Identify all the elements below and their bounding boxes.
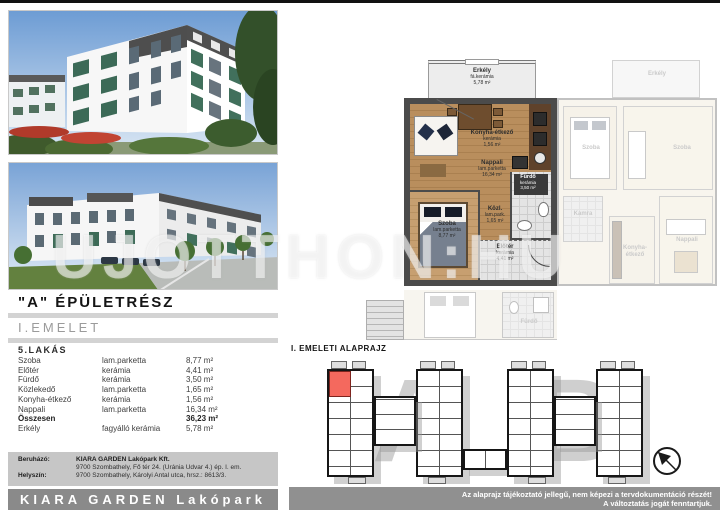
row-room: Erkély <box>18 424 102 434</box>
developer-name: KIARA GARDEN Lakópark Kft. <box>76 456 170 463</box>
room-name: Szoba <box>572 145 610 152</box>
building-section-title: "A" ÉPÜLETRÉSZ <box>18 294 174 311</box>
neighbor-room-kamra: Kamra <box>563 196 603 242</box>
row-material: fagyálló kerámia <box>102 424 186 434</box>
kitchen-counter <box>529 104 551 170</box>
unit-table-title: 5.LAKÁS <box>18 345 67 355</box>
neighbor-apartment-below: Fürdő <box>404 290 557 340</box>
row-material: lam.parketta <box>102 405 186 415</box>
total-area: 36,23 m² <box>186 414 246 424</box>
neighbor-apartment-right: Szoba Szoba Kamra Konyha-étkező Nappali <box>557 98 717 286</box>
table-row: Nappali lam.parketta 16,34 m² <box>18 405 258 415</box>
building-render-1 <box>8 10 278 155</box>
overview-title: I. EMELETI ALAPRAJZ <box>291 344 386 353</box>
label-neighbor-szoba-2: Szoba <box>660 145 704 152</box>
row-area: 16,34 m² <box>186 405 246 415</box>
total-label: Összesen <box>18 414 102 424</box>
unit-table: Szoba lam.parketta 8,77 m² Előtér kerámi… <box>18 356 258 434</box>
overview-balcony-stub <box>608 477 626 484</box>
developer-address: 9700 Szombathely, Fő tér 24. (Uránia Udv… <box>76 464 241 471</box>
room-area: 1,56 m² <box>462 143 522 149</box>
sofa-pillow <box>418 124 435 141</box>
overview-wing-b-core <box>554 396 596 446</box>
kitchen-sink <box>534 152 546 164</box>
overview-balcony-stub <box>511 361 527 369</box>
row-area: 8,77 m² <box>186 356 246 366</box>
total-spacer <box>102 414 186 424</box>
brand-logo-bar: KIARA GARDEN Lakópark <box>8 489 278 510</box>
room-name: Nappali <box>664 237 710 244</box>
row-room: Szoba <box>18 356 102 366</box>
table-row: Előtér kerámia 4,41 m² <box>18 366 258 376</box>
neighbor-single-bed <box>628 131 646 179</box>
kitchen-appliance <box>533 132 547 146</box>
row-room: Előtér <box>18 366 102 376</box>
row-material: kerámia <box>102 366 186 376</box>
bed-pillow <box>424 207 441 217</box>
bed-pillow <box>445 207 462 217</box>
toilet <box>538 202 549 217</box>
table-row: Szoba lam.parketta 8,77 m² <box>18 356 258 366</box>
neighbor-room-szoba-1: Szoba <box>563 106 617 190</box>
sofa <box>414 116 458 156</box>
overview-balcony-stub <box>352 361 366 369</box>
entry-door-swing <box>528 245 550 267</box>
divider-rule-2 <box>8 338 278 343</box>
row-area: 5,78 m² <box>186 424 246 434</box>
brochure-page: { "header": { "building_section": "\"A\"… <box>0 0 720 510</box>
overview-balcony-stub <box>600 361 616 369</box>
row-room: Nappali <box>18 405 102 415</box>
row-area: 1,56 m² <box>186 395 246 405</box>
label-nappali: Nappali lam.parketta 16,34 m² <box>462 160 522 178</box>
label-neighbor-erkely: Erkély <box>637 71 677 78</box>
row-material: lam.parketta <box>102 385 186 395</box>
label-konyha: Konyha-étkező kerámia 1,56 m² <box>462 130 522 148</box>
building-render-2-image <box>9 163 278 290</box>
neighbor-room-konyha: Konyha-étkező <box>609 216 655 284</box>
label-neighbor-furdo: Fürdő <box>511 319 547 326</box>
developer-label: Beruházó: <box>18 456 50 463</box>
overview-wing-a-core <box>374 396 416 446</box>
overview-balcony-stub <box>420 361 436 369</box>
coffee-table <box>420 164 446 177</box>
row-area: 1,65 m² <box>186 385 246 395</box>
label-kozl: Közl. lam.park. 1,65 m² <box>478 206 512 224</box>
disclaimer-line-2: A változtatás jogát fenntartjuk. <box>297 499 712 508</box>
site-label: Helyszín: <box>18 472 47 479</box>
neighbor-bath-below: Fürdő <box>502 292 554 338</box>
overview-wing-a-right-slab <box>416 369 463 477</box>
room-name: Kamra <box>566 211 600 218</box>
neighbor-bed-pillow <box>430 296 446 306</box>
sofa-pillow <box>437 124 454 141</box>
room-name: Erkély <box>637 71 677 78</box>
kitchen-appliance <box>533 112 547 126</box>
neighbor-bed-pillow <box>592 121 606 130</box>
disclaimer-line-1: Az alaprajz tájékoztató jellegű, nem kép… <box>297 490 712 499</box>
overview-balcony-stub <box>428 477 446 484</box>
neighbor-toilet <box>509 301 519 314</box>
row-material: kerámia <box>102 375 186 385</box>
overview-balcony-stub <box>441 361 455 369</box>
neighbor-bed-below <box>424 292 476 338</box>
neighbor-shower <box>533 297 549 313</box>
row-area: 4,41 m² <box>186 366 246 376</box>
table-balcony-row: Erkély fagyálló kerámia 5,78 m² <box>18 424 258 434</box>
site-address: 9700 Szombathely, Károlyi Antal utca, hr… <box>76 472 226 479</box>
neighbor-room-nappali: Nappali <box>659 196 713 284</box>
compass-graphic <box>650 444 684 478</box>
table-row: Közlekedő lam.parketta 1,65 m² <box>18 385 258 395</box>
row-material: kerámia <box>102 395 186 405</box>
overview-balcony-stub <box>532 361 546 369</box>
overview-balcony-stub <box>621 361 635 369</box>
overview-highlighted-unit-5 <box>329 371 351 397</box>
label-neighbor-kamra: Kamra <box>566 211 600 218</box>
table-row: Konyha-étkező kerámia 1,56 m² <box>18 395 258 405</box>
row-area: 3,50 m² <box>186 375 246 385</box>
building-render-1-image <box>9 11 278 155</box>
room-area: 8,77 m² <box>420 234 474 240</box>
room-area: 1,65 m² <box>478 219 512 225</box>
room-area: 4,41 m² <box>482 257 528 263</box>
label-szoba: Szoba lam.parketta 8,77 m² <box>420 221 474 239</box>
label-neighbor-konyha: Konyha-étkező <box>616 245 654 259</box>
wall-szoba-top <box>410 190 480 192</box>
label-erkely: Erkély fá.kerámia 5,78 m² <box>448 68 516 86</box>
disclaimer-bar: Az alaprajz tájékoztató jellegű, nem kép… <box>289 487 720 510</box>
room-area: 3,50 m² <box>512 185 544 190</box>
room-name: Szoba <box>660 145 704 152</box>
row-room: Fürdő <box>18 375 102 385</box>
neighbor-sofa <box>666 219 706 235</box>
divider-rule-1 <box>8 313 278 318</box>
dining-table <box>458 104 492 130</box>
bath-sink <box>517 220 532 231</box>
room-name: Konyha-étkező <box>616 245 654 259</box>
label-neighbor-nappali: Nappali <box>664 237 710 244</box>
room-area: 16,34 m² <box>462 173 522 179</box>
overview-wing-b-right-slab <box>596 369 643 477</box>
wall-szoba-right <box>478 190 480 280</box>
overview-balcony-stub <box>528 477 546 484</box>
room-area: 5,78 m² <box>448 81 516 87</box>
table-row: Fürdő kerámia 3,50 m² <box>18 375 258 385</box>
row-room: Közlekedő <box>18 385 102 395</box>
dining-chair <box>493 120 503 128</box>
neighbor-bed-pillow <box>574 121 588 130</box>
neighbor-bed-pillow <box>453 296 469 306</box>
neighbor-balcony: Erkély <box>612 60 700 98</box>
balcony-railing-notch <box>465 59 499 65</box>
overview-balcony-stub <box>348 477 366 484</box>
table-total-row: Összesen 36,23 m² <box>18 414 258 424</box>
neighbor-table <box>674 251 698 273</box>
dining-chair <box>493 108 503 116</box>
floor-title: I.EMELET <box>18 320 101 335</box>
stairwell <box>366 300 404 340</box>
row-material: lam.parketta <box>102 356 186 366</box>
north-compass-icon <box>650 444 684 478</box>
building-render-2 <box>8 162 278 290</box>
page-top-border <box>0 0 720 3</box>
overview-connector <box>463 449 507 470</box>
row-room: Konyha-étkező <box>18 395 102 405</box>
label-neighbor-szoba-1: Szoba <box>572 145 610 152</box>
neighbor-room-szoba-2: Szoba <box>623 106 713 190</box>
overview-balcony-stub <box>331 361 347 369</box>
room-name: Fürdő <box>511 319 547 326</box>
developer-info-block: Beruházó: KIARA GARDEN Lakópark Kft. 970… <box>8 452 278 486</box>
label-eloter: Előtér kerámia 4,41 m² <box>482 244 528 262</box>
overview-wing-b-left-slab <box>507 369 554 477</box>
